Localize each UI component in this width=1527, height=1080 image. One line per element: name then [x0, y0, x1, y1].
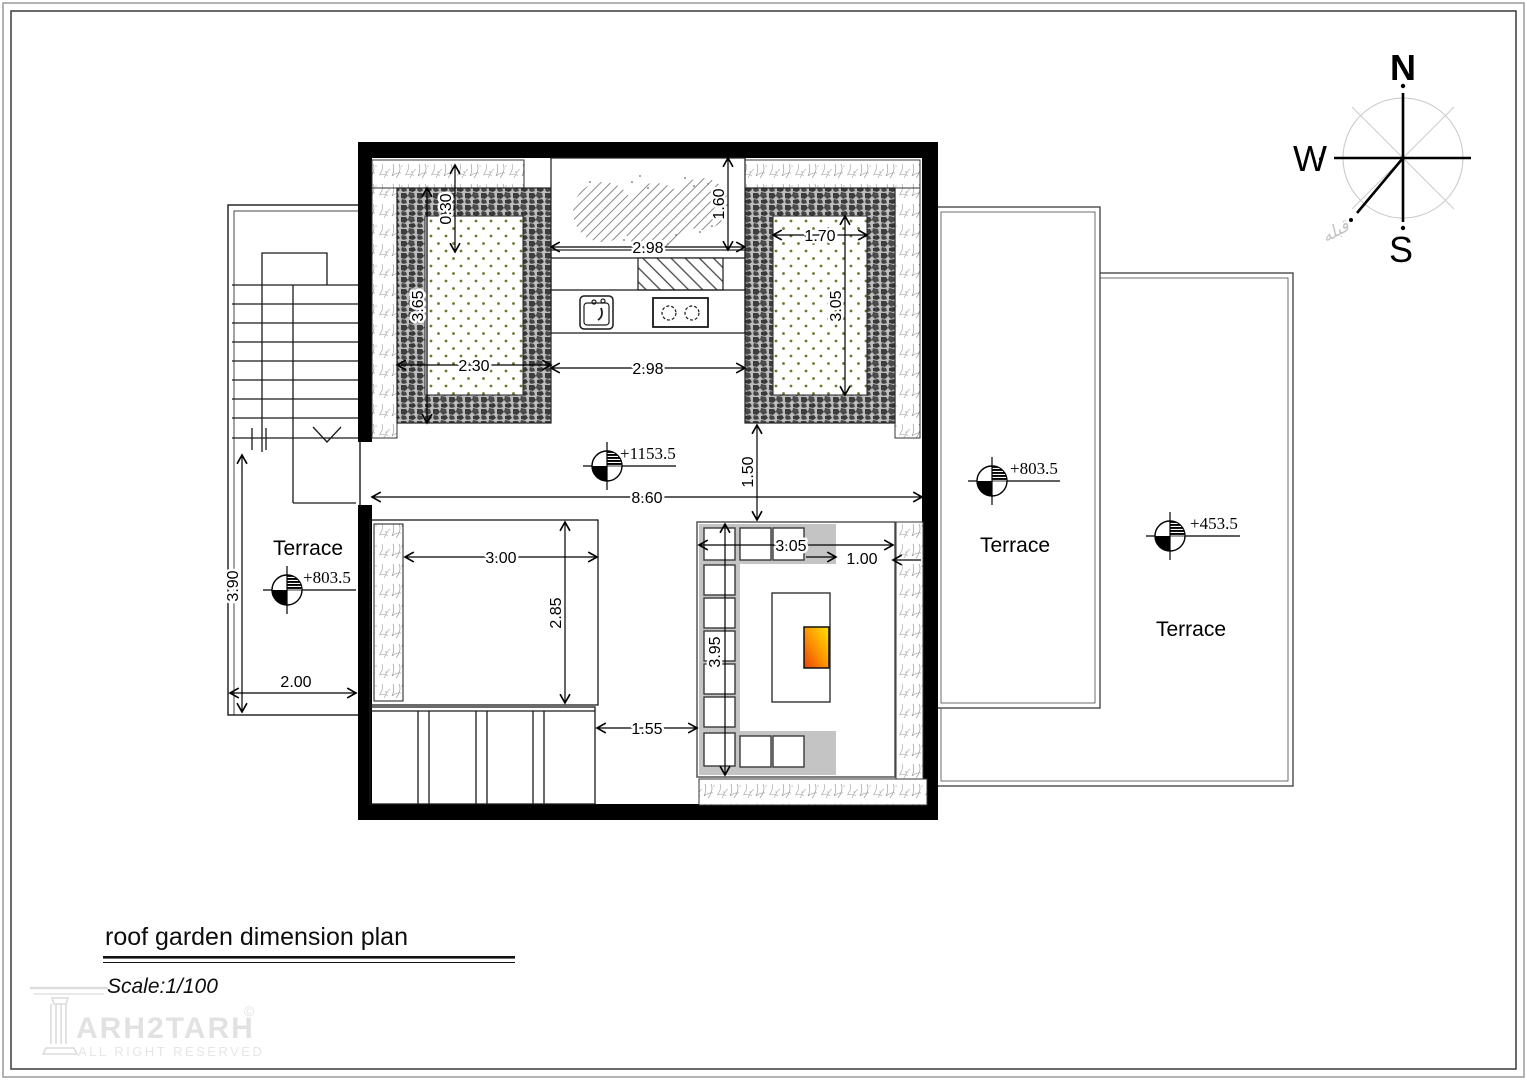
qibla-line: [1357, 158, 1403, 213]
terrace-right-upper-label: Terrace: [980, 534, 1050, 557]
qibla-label: قبله: [1319, 216, 1353, 246]
svg-text:1.60: 1.60: [711, 188, 728, 219]
drawing-title: roof garden dimension plan: [105, 923, 408, 951]
terrace-left-label: Terrace: [273, 537, 343, 560]
svg-text:3.00: 3.00: [485, 550, 516, 567]
svg-text:2.98: 2.98: [632, 240, 663, 257]
logo-tagline: ALL RIGHT RESERVED: [78, 1044, 264, 1059]
dim-roof-width: 8.60: [372, 490, 922, 507]
svg-text:1.55: 1.55: [631, 721, 662, 738]
sink: [580, 296, 613, 329]
bbq-grill: [638, 258, 723, 290]
plant-strip: [745, 160, 920, 188]
terrace-right-lower-label: Terrace: [1156, 618, 1226, 641]
compass-west-label: W: [1293, 138, 1327, 179]
svg-text:2.85: 2.85: [548, 597, 565, 628]
logo-copyright: ©: [244, 1003, 255, 1019]
compass-south-label: S: [1389, 229, 1413, 270]
svg-text:2.30: 2.30: [458, 358, 489, 375]
svg-text:1.50: 1.50: [740, 456, 757, 487]
svg-text:3.05: 3.05: [828, 290, 845, 321]
svg-text:3.05: 3.05: [775, 538, 806, 555]
garden-bed-left: [372, 160, 551, 438]
compass-rose: N W S قبله: [1293, 47, 1471, 270]
stair-landing: [262, 253, 327, 285]
stair-break-ticks: [252, 428, 266, 450]
plant-strip: [699, 779, 927, 805]
decking: [370, 707, 595, 804]
compass-north-label: N: [1390, 47, 1416, 88]
svg-text:2.98: 2.98: [632, 361, 663, 378]
svg-text:+803.5: +803.5: [1010, 459, 1058, 478]
svg-text:+803.5: +803.5: [303, 568, 351, 587]
wall-left-upper: [358, 142, 372, 442]
dim-kitchen-width: 2.98: [551, 361, 745, 378]
title-block: roof garden dimension plan Scale:1/100 A…: [30, 923, 515, 1059]
wall-right: [922, 142, 938, 820]
logo-brand: ARH2TARH: [76, 1012, 255, 1045]
svg-text:2.00: 2.00: [280, 674, 311, 691]
svg-text:1.70: 1.70: [804, 228, 835, 245]
level-marker-terrace-left: +803.5: [263, 566, 356, 614]
dim-room-depth: 2.85: [548, 522, 565, 703]
svg-text:3.65: 3.65: [410, 290, 427, 321]
svg-text:+1153.5: +1153.5: [620, 444, 676, 463]
drawing-scale: Scale:1/100: [107, 975, 218, 998]
stair-treads: [232, 285, 358, 438]
plant-strip: [372, 188, 397, 438]
plant-strip: [374, 524, 403, 701]
dim-terrace-left-width: 2.00: [230, 674, 356, 693]
svg-text:8.60: 8.60: [631, 490, 662, 507]
plant-strip: [372, 160, 524, 188]
drawing-sheet: 0.30 3.65 2.30 2.98 1.60 1.70 3.05 2.98: [0, 0, 1527, 1080]
sofa-lounge: [697, 522, 927, 805]
stairs-terrace-left: [228, 205, 360, 715]
dim-room-width: 3.00: [405, 550, 597, 567]
terrace-right-upper: [936, 207, 1100, 708]
wall-top: [358, 142, 938, 158]
stove: [653, 298, 708, 327]
svg-text:3.95: 3.95: [707, 636, 724, 667]
svg-text:+453.5: +453.5: [1190, 514, 1238, 533]
wall-bottom: [358, 804, 938, 820]
plant-strip: [896, 522, 923, 805]
fireplace: [804, 627, 829, 668]
dim-deck-gap: 1.55: [597, 721, 697, 738]
floor-plan-canvas: 0.30 3.65 2.30 2.98 1.60 1.70 3.05 2.98: [0, 0, 1527, 1080]
plant-strip: [895, 188, 920, 438]
dim-bed-to-sofa-gap: 1.50: [740, 425, 757, 520]
svg-text:1.00: 1.00: [846, 551, 877, 568]
logo: ARH2TARH © ALL RIGHT RESERVED: [30, 988, 264, 1059]
svg-text:3.90: 3.90: [225, 570, 242, 601]
level-marker-roof: +1153.5: [583, 442, 676, 490]
svg-text:0.30: 0.30: [438, 193, 455, 224]
stair-direction-arrow: [313, 427, 341, 442]
